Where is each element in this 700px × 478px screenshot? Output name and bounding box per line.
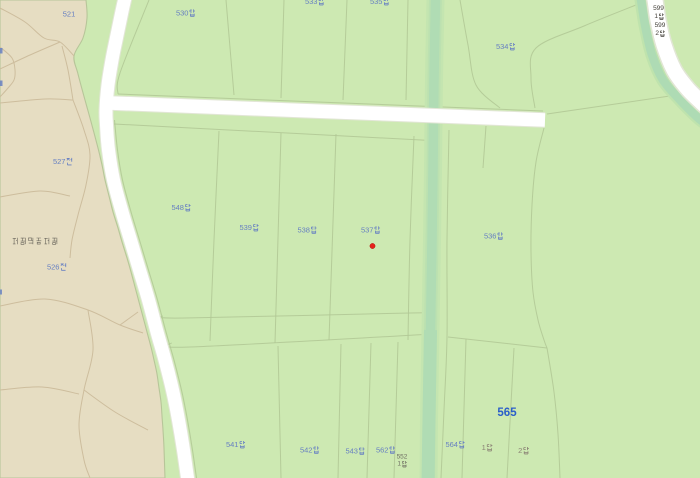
svg-text:534: 534 (496, 42, 509, 51)
svg-text:562: 562 (376, 446, 389, 455)
svg-text:552: 552 (397, 454, 408, 461)
svg-text:1: 1 (482, 443, 486, 452)
svg-text:599: 599 (655, 22, 666, 29)
svg-text:535: 535 (370, 0, 383, 6)
svg-text:1: 1 (654, 13, 658, 20)
svg-text:548: 548 (171, 203, 184, 212)
svg-text:2: 2 (655, 30, 659, 37)
svg-text:537: 537 (361, 226, 374, 235)
svg-text:1: 1 (397, 461, 401, 468)
svg-text:564: 564 (445, 440, 458, 449)
svg-text:538: 538 (297, 226, 310, 235)
svg-text:527: 527 (53, 157, 66, 166)
svg-text:599: 599 (653, 5, 664, 12)
svg-text:541: 541 (226, 440, 239, 449)
svg-text:530: 530 (176, 9, 189, 18)
svg-text:2: 2 (518, 446, 522, 455)
svg-text:542: 542 (300, 446, 313, 455)
svg-text:533: 533 (305, 0, 318, 6)
svg-text:565: 565 (497, 407, 517, 419)
svg-text:543: 543 (345, 447, 358, 456)
svg-text:521: 521 (63, 10, 76, 19)
svg-text:526: 526 (47, 263, 60, 272)
svg-text:536: 536 (484, 232, 497, 241)
svg-text:539: 539 (239, 223, 252, 232)
